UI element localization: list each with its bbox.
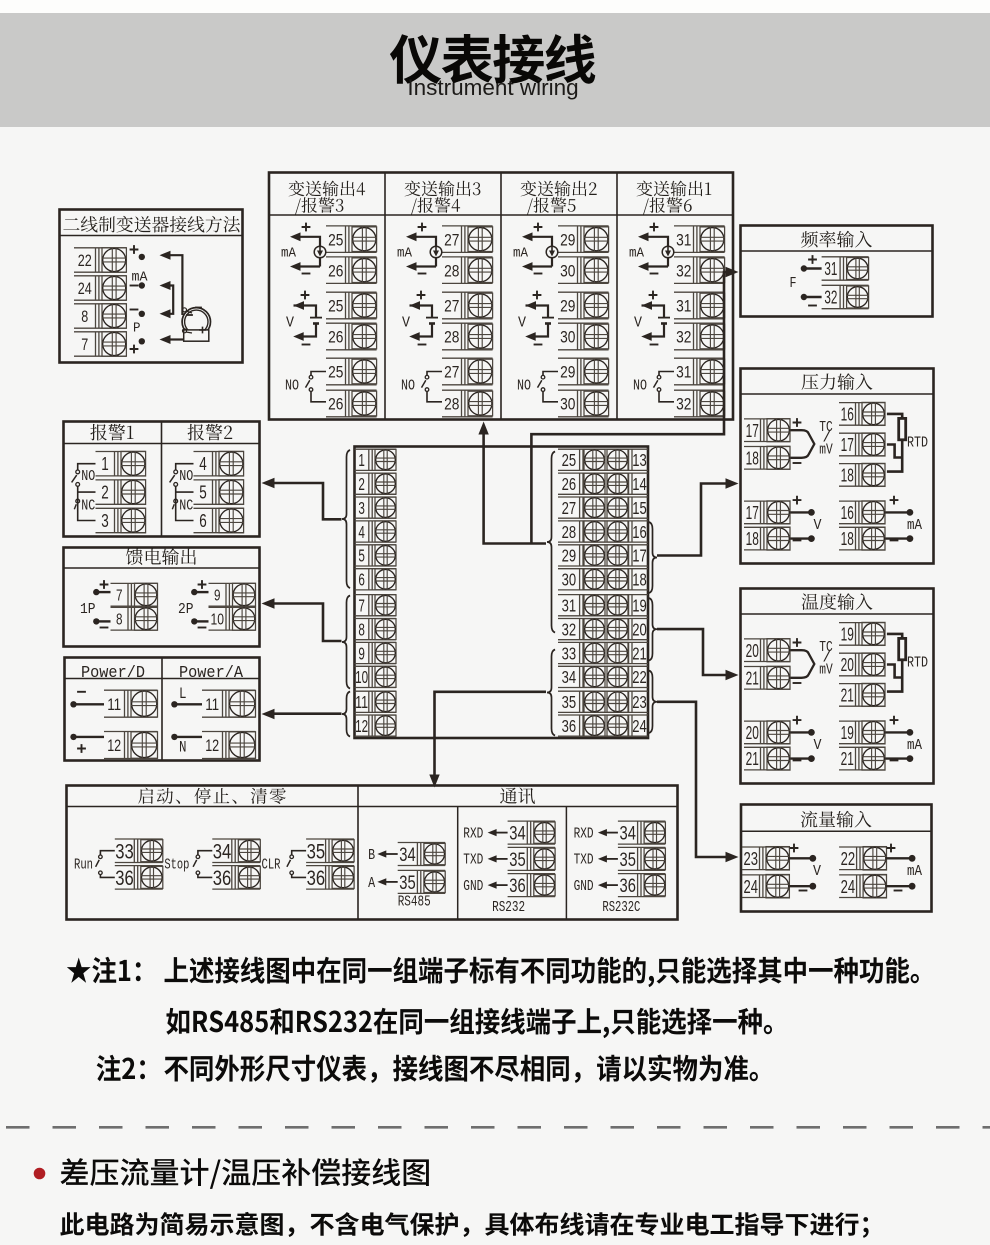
svg-text:RS485: RS485 (398, 895, 431, 911)
svg-text:3: 3 (358, 498, 365, 518)
svg-text:20: 20 (841, 654, 854, 675)
svg-text:NO: NO (517, 379, 531, 395)
svg-text:10: 10 (355, 667, 368, 687)
svg-text:6: 6 (199, 511, 207, 531)
svg-text:30: 30 (560, 328, 575, 347)
svg-text:29: 29 (560, 363, 575, 382)
svg-text:9: 9 (358, 643, 365, 663)
svg-text:19: 19 (632, 596, 647, 616)
svg-text:11: 11 (205, 695, 219, 714)
svg-text:12: 12 (107, 736, 121, 755)
svg-text:20: 20 (746, 640, 759, 661)
svg-text:20: 20 (746, 722, 759, 743)
svg-text:P: P (133, 321, 141, 337)
svg-text:29: 29 (562, 546, 577, 566)
svg-text:V: V (402, 316, 410, 332)
svg-text:31: 31 (676, 297, 691, 316)
svg-text:CLR: CLR (262, 858, 281, 874)
svg-text:L: L (179, 685, 187, 703)
svg-text:A: A (368, 876, 375, 892)
svg-text:F: F (790, 276, 797, 292)
svg-text:36: 36 (307, 866, 326, 890)
svg-text:34: 34 (509, 823, 526, 845)
svg-text:24: 24 (78, 279, 92, 298)
svg-text:NO: NO (285, 379, 299, 395)
svg-text:13: 13 (632, 450, 647, 470)
svg-text:28: 28 (562, 522, 577, 542)
svg-text:11: 11 (107, 695, 121, 714)
svg-text:26: 26 (328, 261, 343, 280)
svg-text:5: 5 (358, 546, 365, 566)
svg-text:33: 33 (115, 839, 134, 863)
svg-text:28: 28 (444, 395, 459, 414)
svg-text:V: V (286, 316, 294, 332)
svg-text:33: 33 (562, 643, 577, 663)
svg-text:34: 34 (562, 667, 577, 687)
svg-text:18: 18 (746, 447, 759, 468)
svg-text:22: 22 (632, 667, 647, 687)
svg-text:V: V (518, 316, 526, 332)
svg-text:8: 8 (116, 611, 123, 628)
svg-text:V: V (634, 316, 642, 332)
svg-text:GND: GND (574, 879, 594, 895)
svg-text:32: 32 (676, 328, 691, 347)
svg-text:RTD: RTD (907, 656, 928, 672)
svg-text:7: 7 (358, 596, 365, 616)
svg-text:21: 21 (841, 748, 854, 769)
svg-text:35: 35 (562, 692, 577, 712)
svg-text:9: 9 (214, 587, 221, 604)
svg-text:18: 18 (841, 465, 854, 486)
svg-text:mV: mV (819, 443, 833, 459)
svg-text:21: 21 (746, 667, 759, 688)
svg-text:Run: Run (74, 858, 93, 874)
svg-text:21: 21 (632, 643, 647, 663)
svg-text:25: 25 (562, 450, 577, 470)
svg-text:18: 18 (746, 528, 759, 549)
svg-text:31: 31 (676, 363, 691, 382)
svg-text:5: 5 (199, 483, 207, 503)
svg-text:27: 27 (444, 297, 459, 316)
svg-text:32: 32 (676, 395, 691, 414)
svg-text:GND: GND (463, 879, 483, 895)
svg-text:mV: mV (819, 663, 833, 679)
svg-text:25: 25 (328, 230, 343, 249)
svg-text:TXD: TXD (574, 853, 594, 869)
svg-text:24: 24 (841, 876, 856, 897)
svg-text:34: 34 (399, 844, 416, 866)
svg-text:19: 19 (841, 722, 854, 743)
svg-text:17: 17 (841, 434, 854, 455)
svg-text:31: 31 (676, 230, 691, 249)
svg-text:17: 17 (746, 420, 759, 441)
svg-text:36: 36 (115, 866, 134, 890)
svg-text:2: 2 (358, 474, 365, 494)
svg-text:29: 29 (560, 297, 575, 316)
svg-text:31: 31 (824, 258, 837, 279)
svg-text:mA: mA (907, 518, 922, 534)
svg-text:Stop: Stop (164, 858, 189, 874)
svg-text:1: 1 (101, 454, 109, 474)
svg-text:Power/D: Power/D (81, 663, 145, 682)
svg-text:NO: NO (401, 379, 415, 395)
svg-text:V: V (814, 518, 822, 534)
svg-text:28: 28 (444, 261, 459, 280)
svg-text:mA: mA (281, 246, 297, 262)
svg-text:8: 8 (81, 307, 88, 326)
svg-text:22: 22 (841, 848, 856, 869)
svg-text:24: 24 (632, 716, 647, 736)
svg-text:27: 27 (562, 498, 577, 518)
svg-text:7: 7 (116, 587, 123, 604)
svg-text:mA: mA (397, 246, 413, 262)
svg-text:V: V (813, 864, 821, 880)
svg-text:NO: NO (81, 469, 95, 485)
svg-text:1P: 1P (80, 602, 96, 618)
svg-text:4: 4 (358, 522, 365, 542)
svg-text:RXD: RXD (574, 826, 594, 842)
svg-text:35: 35 (509, 849, 526, 871)
svg-text:1: 1 (358, 450, 365, 470)
svg-text:35: 35 (620, 849, 637, 871)
svg-text:6: 6 (358, 570, 365, 590)
svg-text:30: 30 (560, 395, 575, 414)
svg-text:26: 26 (328, 328, 343, 347)
svg-text:mA: mA (907, 864, 922, 880)
svg-text:32: 32 (824, 287, 837, 308)
svg-text:B: B (368, 848, 375, 864)
svg-text:RXD: RXD (463, 826, 483, 842)
svg-text:15: 15 (632, 498, 647, 518)
svg-text:mA: mA (907, 738, 922, 754)
svg-text:14: 14 (632, 474, 647, 494)
svg-text:32: 32 (562, 619, 577, 639)
svg-text:mA: mA (629, 246, 645, 262)
svg-text:36: 36 (509, 875, 525, 897)
svg-text:23: 23 (632, 692, 647, 712)
svg-text:RS232C: RS232C (602, 900, 640, 916)
svg-text:34: 34 (620, 823, 637, 845)
svg-text:29: 29 (560, 230, 575, 249)
svg-text:N: N (179, 739, 187, 757)
svg-text:Power/A: Power/A (179, 663, 243, 682)
svg-text:NC: NC (179, 499, 193, 515)
svg-text:18: 18 (841, 528, 854, 549)
svg-text:31: 31 (562, 596, 577, 616)
svg-text:TXD: TXD (463, 853, 483, 869)
svg-text:24: 24 (744, 876, 759, 897)
svg-text:2P: 2P (178, 602, 194, 618)
svg-text:27: 27 (444, 230, 459, 249)
svg-text:22: 22 (78, 251, 92, 270)
svg-text:NO: NO (633, 379, 647, 395)
svg-text:20: 20 (632, 619, 647, 639)
svg-text:21: 21 (746, 748, 759, 769)
svg-text:18: 18 (632, 570, 647, 590)
svg-text:RS232: RS232 (492, 900, 525, 916)
svg-text:16: 16 (632, 522, 647, 542)
svg-text:36: 36 (620, 875, 636, 897)
svg-text:17: 17 (632, 546, 647, 566)
svg-text:4: 4 (199, 454, 207, 474)
svg-text:10: 10 (211, 611, 225, 628)
svg-text:19: 19 (841, 624, 854, 645)
svg-text:11: 11 (355, 692, 368, 712)
svg-text:3: 3 (101, 511, 109, 531)
svg-text:36: 36 (562, 716, 577, 736)
svg-text:17: 17 (746, 502, 759, 523)
svg-text:30: 30 (560, 261, 575, 280)
svg-text:36: 36 (213, 866, 232, 890)
svg-text:RTD: RTD (907, 436, 928, 452)
svg-text:23: 23 (744, 848, 759, 869)
svg-text:mA: mA (513, 246, 529, 262)
svg-text:26: 26 (328, 395, 343, 414)
svg-text:30: 30 (562, 570, 577, 590)
svg-text:Instrument wiring: Instrument wiring (407, 75, 578, 100)
svg-text:7: 7 (81, 335, 88, 354)
svg-text:8: 8 (358, 619, 365, 639)
svg-text:21: 21 (841, 685, 854, 706)
svg-text:26: 26 (562, 474, 577, 494)
svg-text:2: 2 (101, 483, 109, 503)
svg-text:16: 16 (841, 404, 854, 425)
svg-text:V: V (814, 738, 822, 754)
svg-text:NC: NC (81, 499, 95, 515)
svg-text:35: 35 (399, 872, 416, 894)
svg-text:25: 25 (328, 363, 343, 382)
svg-text:NO: NO (179, 469, 193, 485)
svg-text:28: 28 (444, 328, 459, 347)
svg-text:32: 32 (676, 261, 691, 280)
svg-text:25: 25 (328, 297, 343, 316)
svg-text:12: 12 (205, 736, 219, 755)
svg-text:16: 16 (841, 502, 854, 523)
svg-text:35: 35 (307, 839, 326, 863)
svg-text:12: 12 (355, 716, 368, 736)
svg-text:27: 27 (444, 363, 459, 382)
svg-text:34: 34 (213, 839, 232, 863)
